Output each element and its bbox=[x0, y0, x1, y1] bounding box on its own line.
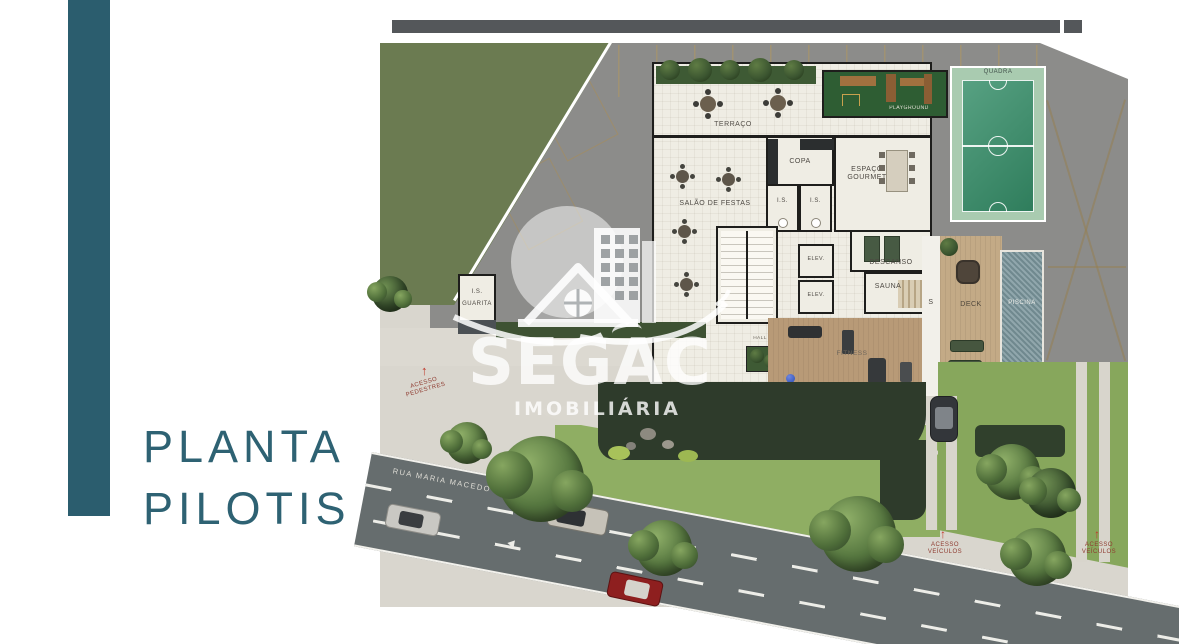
fitness-machine bbox=[868, 358, 886, 384]
driveway-b-track-1 bbox=[1076, 362, 1087, 562]
terrace-tree-4 bbox=[748, 58, 772, 82]
copa-counter-left bbox=[768, 139, 778, 184]
car-red-roof bbox=[624, 579, 651, 600]
tree-street-mid bbox=[636, 520, 692, 576]
tree-sidewalk-right bbox=[1008, 528, 1066, 586]
bathroom-1-label: I.S. bbox=[766, 198, 799, 205]
fitness-label: FITNESS bbox=[822, 350, 882, 357]
gourmet-chairs-left bbox=[879, 152, 885, 190]
deck-table bbox=[956, 260, 980, 284]
sauna-label: SAUNA bbox=[864, 283, 912, 291]
watermark-subtitle: IMOBILIÁRIA bbox=[514, 398, 681, 420]
vehicle-access-b-arrow: ↑ bbox=[1094, 528, 1100, 540]
terrace-tree-5 bbox=[784, 60, 804, 80]
vehicle-access-a-label: ACESSO VEÍCULOS bbox=[922, 542, 968, 556]
court-center-circle bbox=[988, 136, 1008, 156]
tree-walkway bbox=[446, 422, 488, 464]
playground-tower bbox=[924, 74, 932, 104]
vehicle-access-a-arrow: ↑ bbox=[940, 528, 946, 540]
service-corridor bbox=[922, 236, 940, 396]
toilet-2 bbox=[811, 218, 821, 228]
vehicle-access-b-label: ACESSO VEÍCULOS bbox=[1076, 542, 1122, 556]
car-driveway bbox=[930, 396, 958, 442]
street-lane-arrow-2 bbox=[507, 539, 515, 548]
tree-left-edge bbox=[372, 276, 408, 312]
tree-street-right bbox=[820, 496, 896, 572]
copa-label: COPA bbox=[778, 158, 822, 166]
tree-street-large bbox=[498, 436, 584, 522]
fitness-rack bbox=[900, 362, 912, 382]
dense-garden-arm bbox=[880, 440, 926, 520]
top-boundary-wall-right bbox=[1064, 20, 1082, 33]
flyer-canvas: PLANTA PILOTIS TERRAÇO PLAYGROUND QUADRA bbox=[0, 0, 1179, 644]
gourmet-table bbox=[886, 150, 908, 192]
car-driveway-roof bbox=[935, 407, 953, 429]
driveway-b-track-2 bbox=[1099, 362, 1110, 562]
pool-label: PISCINA bbox=[1000, 300, 1044, 307]
car-silver-roof bbox=[398, 510, 424, 528]
court-label: QUADRA bbox=[950, 69, 1046, 76]
garden-rock-2 bbox=[662, 440, 674, 449]
playground-swing bbox=[842, 94, 860, 106]
deck-lounger-1 bbox=[950, 340, 984, 352]
terrace-table-1 bbox=[700, 96, 716, 112]
fitness-bench bbox=[788, 326, 822, 338]
terrace-tree-1 bbox=[660, 60, 680, 80]
top-boundary-wall bbox=[392, 20, 1060, 33]
elevator-1-label: ELEV. bbox=[800, 256, 832, 262]
elevator-2-label: ELEV. bbox=[800, 292, 832, 298]
garden-palm-2 bbox=[678, 450, 698, 462]
brand-accent-bar bbox=[68, 0, 110, 516]
page-title-line2: PILOTIS bbox=[143, 478, 351, 540]
party-table-2 bbox=[722, 173, 735, 186]
toilet-1 bbox=[778, 218, 788, 228]
terrace-tree-2 bbox=[688, 58, 712, 82]
page-title: PLANTA PILOTIS bbox=[143, 416, 351, 540]
terrace-tree-3 bbox=[720, 60, 740, 80]
page-title-line1: PLANTA bbox=[143, 416, 351, 478]
terrace-label: TERRAÇO bbox=[698, 121, 768, 129]
playground-slide bbox=[886, 74, 896, 102]
playground-bench bbox=[840, 76, 876, 86]
pedestrian-access-arrow: ↑ bbox=[421, 364, 428, 377]
playground-label: PLAYGROUND bbox=[879, 106, 939, 112]
rest-room-label: DESCANSO bbox=[854, 259, 928, 267]
service-corridor-label: S bbox=[924, 299, 938, 307]
copa-counter-top bbox=[800, 139, 834, 150]
gourmet-chairs-right bbox=[909, 152, 915, 190]
garden-rock-1 bbox=[640, 428, 656, 440]
parking-divider-line bbox=[1048, 266, 1126, 268]
deck-label: DECK bbox=[944, 301, 998, 309]
garden-palm-1 bbox=[608, 446, 630, 460]
party-table-1 bbox=[676, 170, 689, 183]
watermark-brand: SEGAC bbox=[468, 326, 712, 400]
tree-grass-2 bbox=[1026, 468, 1076, 518]
logo-building-side bbox=[642, 241, 656, 323]
deck-plant bbox=[940, 238, 958, 256]
bathroom-2-label: I.S. bbox=[799, 198, 832, 205]
terrace-table-2 bbox=[770, 95, 786, 111]
